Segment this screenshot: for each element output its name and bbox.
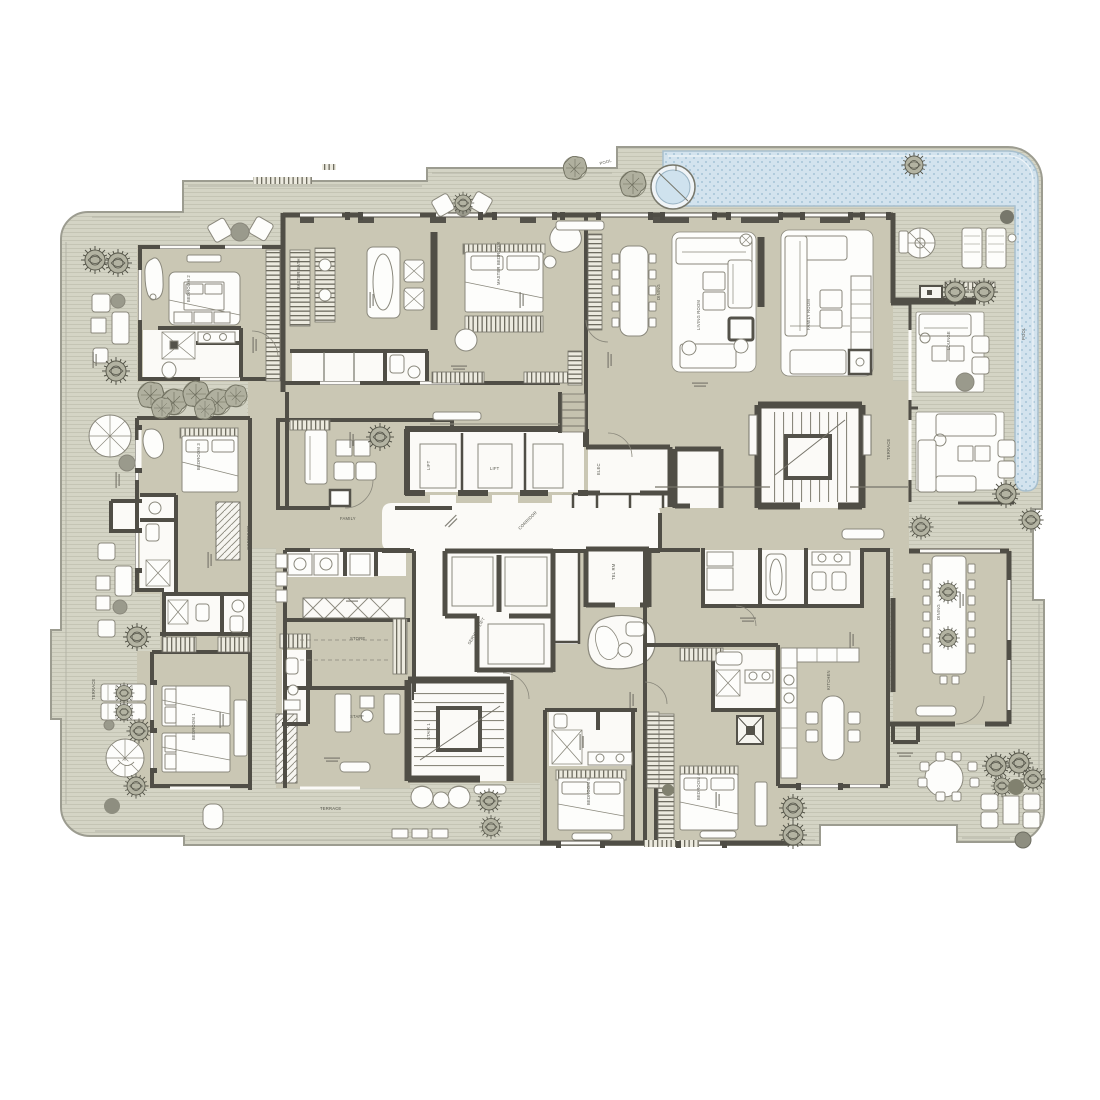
svg-text:BEDROOM 2: BEDROOM 2 [186,275,191,302]
svg-text:BEDROOM 1: BEDROOM 1 [191,713,196,740]
svg-text:TEL RM: TEL RM [611,563,616,580]
svg-text:FAMILY: FAMILY [340,516,356,521]
svg-text:FAMILY ROOM: FAMILY ROOM [806,299,811,330]
svg-text:LIVING ROOM: LIVING ROOM [696,300,701,330]
svg-text:BEDROOM 3: BEDROOM 3 [196,443,201,470]
svg-text:LOUNGE: LOUNGE [946,331,951,350]
svg-text:BEDROOM 5: BEDROOM 5 [586,778,591,805]
svg-text:POOL: POOL [1021,327,1026,340]
svg-text:TERRACE: TERRACE [886,439,891,460]
svg-text:STAFF: STAFF [350,714,364,719]
svg-text:DINING: DINING [936,604,941,620]
svg-text:DINING: DINING [656,284,661,300]
svg-text:LIFT: LIFT [426,460,431,470]
svg-text:STAIR 1: STAIR 1 [426,723,431,740]
svg-text:LIFT: LIFT [490,466,500,471]
svg-text:TERRACE: TERRACE [91,679,96,700]
svg-text:CORRIDOR: CORRIDOR [246,526,251,550]
svg-text:MASTER BATH: MASTER BATH [296,258,301,290]
svg-text:ELEC: ELEC [596,463,601,475]
svg-text:STORE: STORE [350,636,365,641]
svg-text:MASTER BEDROOM: MASTER BEDROOM [496,242,501,285]
svg-text:KITCHEN: KITCHEN [826,670,831,690]
svg-text:TERRACE: TERRACE [320,806,341,811]
svg-text:BEDROOM 4: BEDROOM 4 [696,773,701,800]
